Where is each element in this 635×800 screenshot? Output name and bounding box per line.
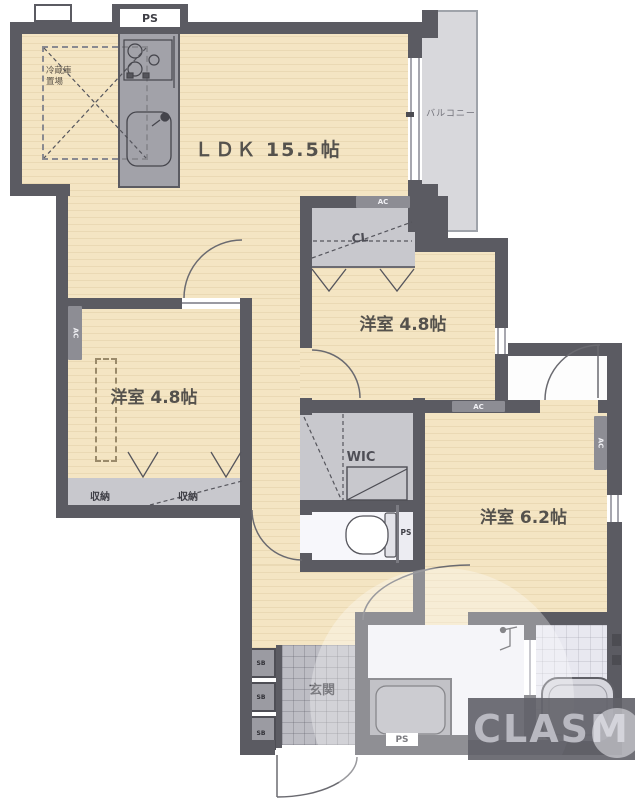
ac-label: AC [71, 328, 79, 339]
ac-unit-cl: AC [356, 196, 410, 208]
wic-shelf [347, 467, 407, 500]
bedroom-main-label: 洋室 6.2帖 [446, 502, 601, 528]
ac-unit-bedroom-main-top: AC [452, 401, 505, 412]
door-arc-toilet [252, 510, 302, 560]
door-arc-bedroom-left [184, 240, 242, 298]
bath-taps-icon [612, 634, 621, 665]
balcony-label: バルコニー [422, 106, 480, 118]
fridge-x-mark [44, 48, 146, 158]
fridge-space-line2: 置場 [46, 77, 106, 88]
kitchen-sink-icon [127, 112, 171, 166]
watermark-circle-small [592, 708, 635, 758]
folding-door-cl [312, 269, 414, 291]
bedroom-right-label: 洋室 4.8帖 [333, 309, 473, 335]
ac-label: AC [473, 403, 484, 411]
door-arc-bedroom-main [545, 345, 600, 400]
fridge-space-label: 冷蔵庫 置場 [46, 66, 106, 92]
ps-toilet-label: PS [397, 526, 415, 538]
ac-label: AC [597, 438, 605, 449]
ac-unit-bedroom-left: AC [68, 306, 82, 360]
kitchen-stove-icon [124, 36, 174, 88]
ac-unit-bedroom-main-right: AC [594, 416, 607, 470]
wic-label: WIC [330, 448, 392, 466]
ldk-label: ＬＤＫ 15.5帖 [188, 134, 348, 162]
closet-right-label: 収納 [164, 489, 212, 502]
fridge-space-line1: 冷蔵庫 [46, 66, 106, 77]
ac-label: AC [378, 198, 389, 206]
closet-left-label: 収納 [76, 489, 124, 502]
folding-door-closet [128, 452, 241, 477]
toilet-icon [346, 513, 396, 557]
bedroom-left-label: 洋室 4.8帖 [84, 382, 224, 408]
door-arc-bedroom-right [312, 350, 360, 398]
folding-door-symbols [128, 269, 414, 477]
floorplan-canvas: SB SB SB [0, 0, 635, 800]
dashed-lines [44, 48, 412, 505]
